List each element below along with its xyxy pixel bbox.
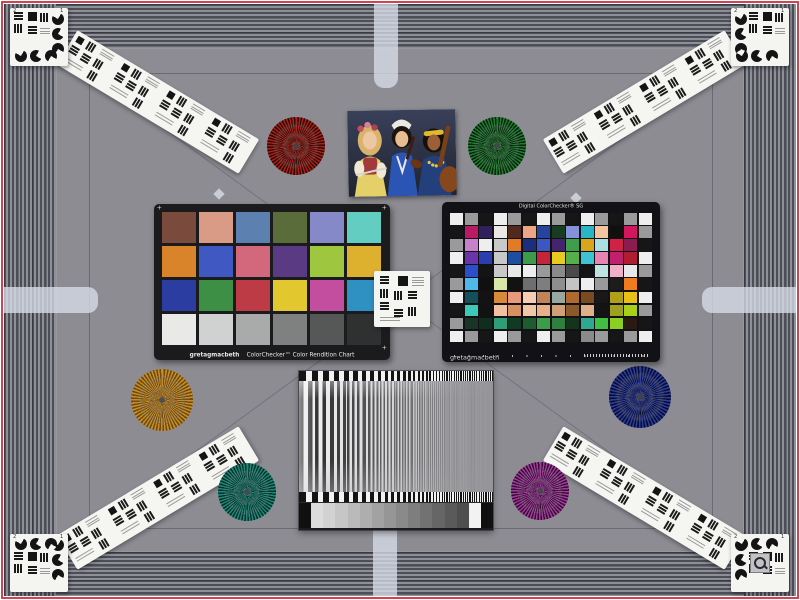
sg-color-patch <box>552 265 565 277</box>
usaf-bar-group <box>577 131 589 143</box>
sg-color-patch <box>595 265 608 277</box>
sg-color-patch <box>523 213 536 225</box>
usaf-square <box>166 90 176 100</box>
usaf-bar-group <box>91 527 103 539</box>
usaf-bar-group <box>690 523 702 535</box>
usaf-bar-group <box>221 123 233 135</box>
micro-print-line <box>775 31 785 32</box>
usaf-square <box>75 36 85 46</box>
sg-color-patch <box>581 318 594 330</box>
usaf-bar-group <box>701 531 713 543</box>
registration-plus-icon: + <box>157 206 162 211</box>
usaf-bar-group <box>86 70 98 82</box>
usaf-bar-group <box>624 482 636 494</box>
usaf-bar <box>781 13 783 22</box>
sweep-contrast-fade <box>299 381 493 492</box>
sg-color-patch <box>465 305 478 317</box>
sg-color-patch <box>552 278 565 290</box>
usaf-bar-group <box>584 142 596 154</box>
pacman-fiducial-icon <box>736 538 748 550</box>
sg-color-patch <box>479 239 492 251</box>
gray-step-patch <box>445 503 457 529</box>
sg-color-patch <box>595 239 608 251</box>
sg-color-patch <box>537 252 550 264</box>
usaf-bar-group <box>667 76 679 88</box>
sg-color-patch <box>639 331 652 343</box>
color-patch <box>199 212 233 243</box>
sg-color-patch <box>537 265 550 277</box>
usaf-bar-group <box>181 472 193 484</box>
usaf-square <box>639 83 649 93</box>
usaf-bar-group <box>163 471 175 483</box>
usaf-digit: 1 <box>60 8 63 13</box>
sg-color-patch <box>610 252 623 264</box>
sg-color-patch <box>552 305 565 317</box>
pacman-fiducial-icon <box>15 50 27 62</box>
micro-print <box>40 568 50 576</box>
micro-print-line <box>40 31 50 32</box>
sg-color-patch <box>465 278 478 290</box>
sg-color-patch <box>450 265 463 277</box>
sg-color-patch <box>494 305 507 317</box>
usaf-bar-group <box>40 553 49 562</box>
pacman-fiducial-icon <box>52 13 64 25</box>
sg-color-patch <box>581 252 594 264</box>
color-patch <box>310 280 344 311</box>
usaf-square <box>28 12 37 21</box>
usaf-bar-group <box>125 80 137 92</box>
usaf-bar-group <box>92 58 104 70</box>
usaf-bar-group <box>159 99 171 111</box>
sg-color-patch <box>581 305 594 317</box>
sg-color-patch <box>624 226 637 238</box>
usaf-digit: 1 <box>781 534 784 539</box>
sg-color-patch <box>537 239 550 251</box>
sg-color-patch <box>639 226 652 238</box>
gray-step-patch <box>432 503 444 529</box>
sg-color-patch <box>508 278 521 290</box>
usaf-bar <box>763 26 772 28</box>
sg-color-patch <box>450 318 463 330</box>
color-patch <box>199 246 233 277</box>
colorchecker-caption: gretagmacbethColorChecker™ Color Renditi… <box>187 352 357 358</box>
usaf-bar-group <box>622 104 634 116</box>
color-patch <box>162 246 196 277</box>
usaf-bar-group <box>558 129 570 141</box>
micro-print-line <box>775 571 785 572</box>
usaf-bar <box>17 24 19 33</box>
usaf-bar <box>380 305 389 307</box>
sg-color-patch <box>479 226 492 238</box>
sg-color-patch <box>624 305 637 317</box>
sg-color-patch <box>494 213 507 225</box>
usaf-bar <box>40 13 42 22</box>
usaf-bar-group <box>694 47 706 59</box>
sg-color-patch <box>465 239 478 251</box>
usaf-bar <box>14 552 23 554</box>
sg-color-patch <box>494 292 507 304</box>
usaf-digit: 2 <box>13 8 16 13</box>
colorchecker-sg-chart: Digital ColorChecker® SG gretagmacbeth <box>442 202 660 362</box>
sg-color-patch <box>537 278 550 290</box>
gray-step-patch <box>299 503 311 529</box>
usaf-bar-group <box>775 553 784 562</box>
sg-color-patch <box>566 239 579 251</box>
usaf-bar <box>380 302 389 304</box>
sg-color-patch <box>479 331 492 343</box>
usaf-bar <box>408 291 417 293</box>
pacman-fiducial-icon <box>52 554 64 566</box>
gray-step-patch <box>408 503 420 529</box>
colorchecker-brand: gretagmacbeth <box>190 352 240 358</box>
sg-color-patch <box>508 265 521 277</box>
corner-target-bottom-right: 21 <box>731 534 789 592</box>
usaf-bar-group <box>702 58 714 70</box>
usaf-bar <box>20 564 22 573</box>
corner-target-bottom-left: 21 <box>10 534 68 592</box>
usaf-bar <box>43 13 45 22</box>
usaf-bar-group <box>72 525 84 537</box>
sg-color-patch <box>552 292 565 304</box>
pacman-fiducial-icon <box>52 28 64 40</box>
sg-color-patch <box>494 226 507 238</box>
sg-color-patch <box>494 278 507 290</box>
micro-print <box>380 317 400 322</box>
usaf-bar <box>778 13 780 22</box>
micro-print-line <box>40 33 50 34</box>
sg-color-patch <box>624 252 637 264</box>
sg-color-patch <box>508 252 521 264</box>
sg-color-patch <box>479 252 492 264</box>
usaf-bar-group <box>14 552 23 561</box>
sg-color-patch <box>639 318 652 330</box>
sg-color-patch <box>465 318 478 330</box>
sg-color-patch <box>450 278 463 290</box>
micro-print-line <box>380 317 400 318</box>
sg-color-patch <box>479 292 492 304</box>
usaf-bar <box>46 553 48 562</box>
pacman-fiducial-icon <box>15 538 27 550</box>
sg-color-patch <box>624 213 637 225</box>
usaf-digit: 2 <box>734 534 737 539</box>
center-tab-right <box>702 287 796 313</box>
micro-print-line <box>380 320 400 321</box>
usaf-bar-group <box>208 443 220 455</box>
sg-color-patch <box>581 265 594 277</box>
micro-print-line <box>775 568 785 569</box>
usaf-bar-group <box>40 13 49 22</box>
usaf-bar-group <box>644 92 656 104</box>
usaf-square <box>548 137 558 147</box>
usaf-bar-group <box>14 24 23 33</box>
usaf-digit: 1 <box>781 8 784 13</box>
usaf-bar-group <box>630 114 642 126</box>
usaf-bar <box>400 291 402 300</box>
pacman-fiducial-icon <box>751 50 763 62</box>
usaf-bar-group <box>571 437 583 449</box>
sg-color-patch <box>465 226 478 238</box>
micro-print-line <box>412 282 424 283</box>
micro-print-line <box>412 285 424 286</box>
stripe-band-top <box>56 4 744 48</box>
sg-color-patch <box>639 252 652 264</box>
sg-color-patch <box>610 318 623 330</box>
sg-color-patch <box>595 292 608 304</box>
siemens-star-teal <box>218 463 276 521</box>
musicians-photo-art <box>347 109 456 197</box>
micro-print <box>40 28 50 36</box>
usaf-bar <box>394 312 403 314</box>
center-usaf-target <box>374 271 430 327</box>
gray-step-patch <box>360 503 372 529</box>
usaf-bar <box>749 24 751 33</box>
usaf-bar <box>28 26 37 28</box>
sg-color-patch <box>494 331 507 343</box>
sg-color-patch <box>523 292 536 304</box>
sg-color-patch <box>624 331 637 343</box>
sg-color-patch <box>479 318 492 330</box>
sg-color-patch <box>508 226 521 238</box>
usaf-bar-group <box>130 68 142 80</box>
usaf-bar-group <box>204 127 216 139</box>
usaf-bar-group <box>189 483 201 495</box>
usaf-bar-group <box>553 146 565 158</box>
usaf-square <box>594 110 604 120</box>
sg-color-patch <box>523 252 536 264</box>
sg-color-patch <box>523 239 536 251</box>
sg-color-patch <box>494 252 507 264</box>
sg-color-patch <box>537 305 550 317</box>
sg-color-patch <box>566 252 579 264</box>
usaf-square <box>108 506 118 516</box>
sg-color-patch <box>581 331 594 343</box>
usaf-bar <box>14 24 16 33</box>
color-patch <box>236 212 270 243</box>
usaf-bar <box>28 572 37 574</box>
sg-color-patch <box>639 292 652 304</box>
gray-step-patch <box>396 503 408 529</box>
center-tab-top <box>374 4 398 88</box>
sg-color-patch <box>639 305 652 317</box>
sg-color-patch <box>610 331 623 343</box>
gray-step-patch <box>335 503 347 529</box>
usaf-bar-group <box>599 468 611 480</box>
gray-step-patch <box>348 503 360 529</box>
sg-color-patch <box>508 239 521 251</box>
usaf-bar <box>408 294 417 296</box>
usaf-bar-group <box>125 508 137 520</box>
color-patch <box>310 212 344 243</box>
chart-bottom-edge <box>299 528 493 530</box>
usaf-bar-group <box>662 492 674 504</box>
usaf-digit: 2 <box>734 8 737 13</box>
usaf-bar <box>28 32 37 34</box>
usaf-bar-group <box>657 85 669 97</box>
micro-print-line <box>775 28 785 29</box>
usaf-bar-group <box>215 135 227 147</box>
usaf-bar-group <box>380 289 389 298</box>
usaf-bar <box>380 279 389 281</box>
usaf-bar <box>28 29 37 31</box>
usaf-square <box>607 459 617 469</box>
color-patch <box>310 314 344 345</box>
sg-color-patch <box>566 226 579 238</box>
usaf-bar-group <box>663 520 675 532</box>
sg-color-patch <box>552 331 565 343</box>
usaf-bar <box>778 553 780 562</box>
micro-print-line <box>40 571 50 572</box>
usaf-bar <box>749 15 758 17</box>
registration-plus-icon: + <box>382 206 387 211</box>
usaf-bar-group <box>98 538 110 550</box>
usaf-bar-group <box>554 441 566 453</box>
usaf-bar-group <box>136 500 148 512</box>
usaf-bar <box>414 307 416 316</box>
usaf-square <box>697 514 707 524</box>
sg-color-patch <box>566 278 579 290</box>
pacman-fiducial-icon <box>735 13 747 25</box>
usaf-bar-group <box>749 24 758 33</box>
color-patch <box>199 280 233 311</box>
usaf-bar-group <box>138 86 150 98</box>
corner-target-top-right: 21 <box>731 8 789 66</box>
micro-print-line <box>775 33 785 34</box>
color-patch <box>236 280 270 311</box>
sg-color-patch <box>610 265 623 277</box>
barcode-cell <box>492 371 493 381</box>
sg-color-patch <box>450 252 463 264</box>
sg-color-patch <box>595 305 608 317</box>
sg-color-patch <box>624 318 637 330</box>
micro-print-line <box>412 280 424 281</box>
siemens-star-magenta <box>511 462 569 520</box>
sg-color-patch <box>465 292 478 304</box>
usaf-bar-group <box>775 13 784 22</box>
sg-color-patch <box>566 292 579 304</box>
gray-step-patch <box>481 503 493 529</box>
pacman-fiducial-icon <box>736 50 748 62</box>
sg-color-patch <box>624 265 637 277</box>
usaf-bar <box>17 564 19 573</box>
gray-step-patch <box>469 503 481 529</box>
color-patch <box>273 280 307 311</box>
sg-color-patch <box>624 292 637 304</box>
colorchecker-chart: gretagmacbethColorChecker™ Color Renditi… <box>154 204 390 360</box>
sg-color-patch <box>537 226 550 238</box>
usaf-bar-group <box>572 466 584 478</box>
colorchecker-title: ColorChecker™ Color Rendition Chart <box>247 352 355 358</box>
grayscale-step-wedge <box>299 502 493 529</box>
sg-ruler-scale <box>584 354 650 357</box>
usaf-bar <box>20 24 22 33</box>
gray-step-patch <box>372 503 384 529</box>
sg-color-patch <box>523 265 536 277</box>
usaf-square <box>652 486 662 496</box>
usaf-bar <box>397 291 399 300</box>
micro-print-line <box>412 277 424 278</box>
sg-color-patch <box>523 305 536 317</box>
micro-print <box>412 277 424 287</box>
sg-color-patch <box>450 331 463 343</box>
usaf-bar <box>14 558 23 560</box>
sg-color-patch <box>450 292 463 304</box>
pacman-fiducial-icon <box>735 569 747 581</box>
sg-color-patch <box>523 331 536 343</box>
usaf-bar-group <box>656 503 668 515</box>
usaf-bar-group <box>611 112 623 124</box>
sg-color-patch <box>450 226 463 238</box>
usaf-bar <box>14 18 23 20</box>
color-patch <box>273 314 307 345</box>
magnifier-icon <box>750 553 770 573</box>
pacman-fiducial-icon <box>735 28 747 40</box>
usaf-bar-group <box>611 476 623 488</box>
usaf-bar <box>14 555 23 557</box>
sg-color-patch <box>566 331 579 343</box>
sg-color-patch <box>479 278 492 290</box>
sg-color-patch <box>537 331 550 343</box>
usaf-bar-group <box>604 102 616 114</box>
usaf-bar-group <box>707 519 719 531</box>
usaf-bar-group <box>80 536 92 548</box>
usaf-bar <box>755 24 757 33</box>
micro-print-line <box>40 573 50 574</box>
usaf-bar-group <box>380 276 389 285</box>
sg-color-patch <box>552 213 565 225</box>
sg-color-patch <box>465 252 478 264</box>
usaf-bar <box>394 291 396 300</box>
usaf-bar <box>775 13 777 22</box>
usaf-bar-group <box>228 140 240 152</box>
sg-color-patch <box>566 213 579 225</box>
sg-color-patch <box>595 252 608 264</box>
usaf-bar <box>411 307 413 316</box>
usaf-bar-group <box>669 509 681 521</box>
color-patch <box>273 212 307 243</box>
gray-step-patch <box>457 503 469 529</box>
usaf-bar-group <box>394 291 403 300</box>
usaf-bar-group <box>709 548 721 560</box>
sg-color-patch <box>508 331 521 343</box>
usaf-bar-group <box>158 488 170 500</box>
usaf-bar-group <box>749 12 758 21</box>
usaf-bar <box>386 289 388 298</box>
sg-color-patch <box>581 292 594 304</box>
usaf-bar <box>14 15 23 17</box>
gray-step-patch <box>323 503 335 529</box>
usaf-bar-group <box>68 45 80 57</box>
sg-color-patch <box>508 305 521 317</box>
gray-step-patch <box>311 503 323 529</box>
sg-color-patch <box>465 331 478 343</box>
sg-color-patch <box>537 213 550 225</box>
center-tab-left <box>4 287 98 313</box>
usaf-bar-group <box>170 107 182 119</box>
sg-color-patch <box>581 213 594 225</box>
usaf-bar-group <box>618 493 630 505</box>
sg-color-patch <box>523 318 536 330</box>
sg-color-patch <box>610 239 623 251</box>
siemens-star-gold <box>131 369 193 431</box>
sg-color-patch <box>537 292 550 304</box>
sg-color-patch <box>566 318 579 330</box>
sg-color-patch <box>610 278 623 290</box>
usaf-bar-group <box>177 124 189 136</box>
sg-color-patch <box>610 305 623 317</box>
usaf-bar-group <box>223 152 235 164</box>
usaf-bar <box>383 289 385 298</box>
sg-color-patch <box>508 292 521 304</box>
